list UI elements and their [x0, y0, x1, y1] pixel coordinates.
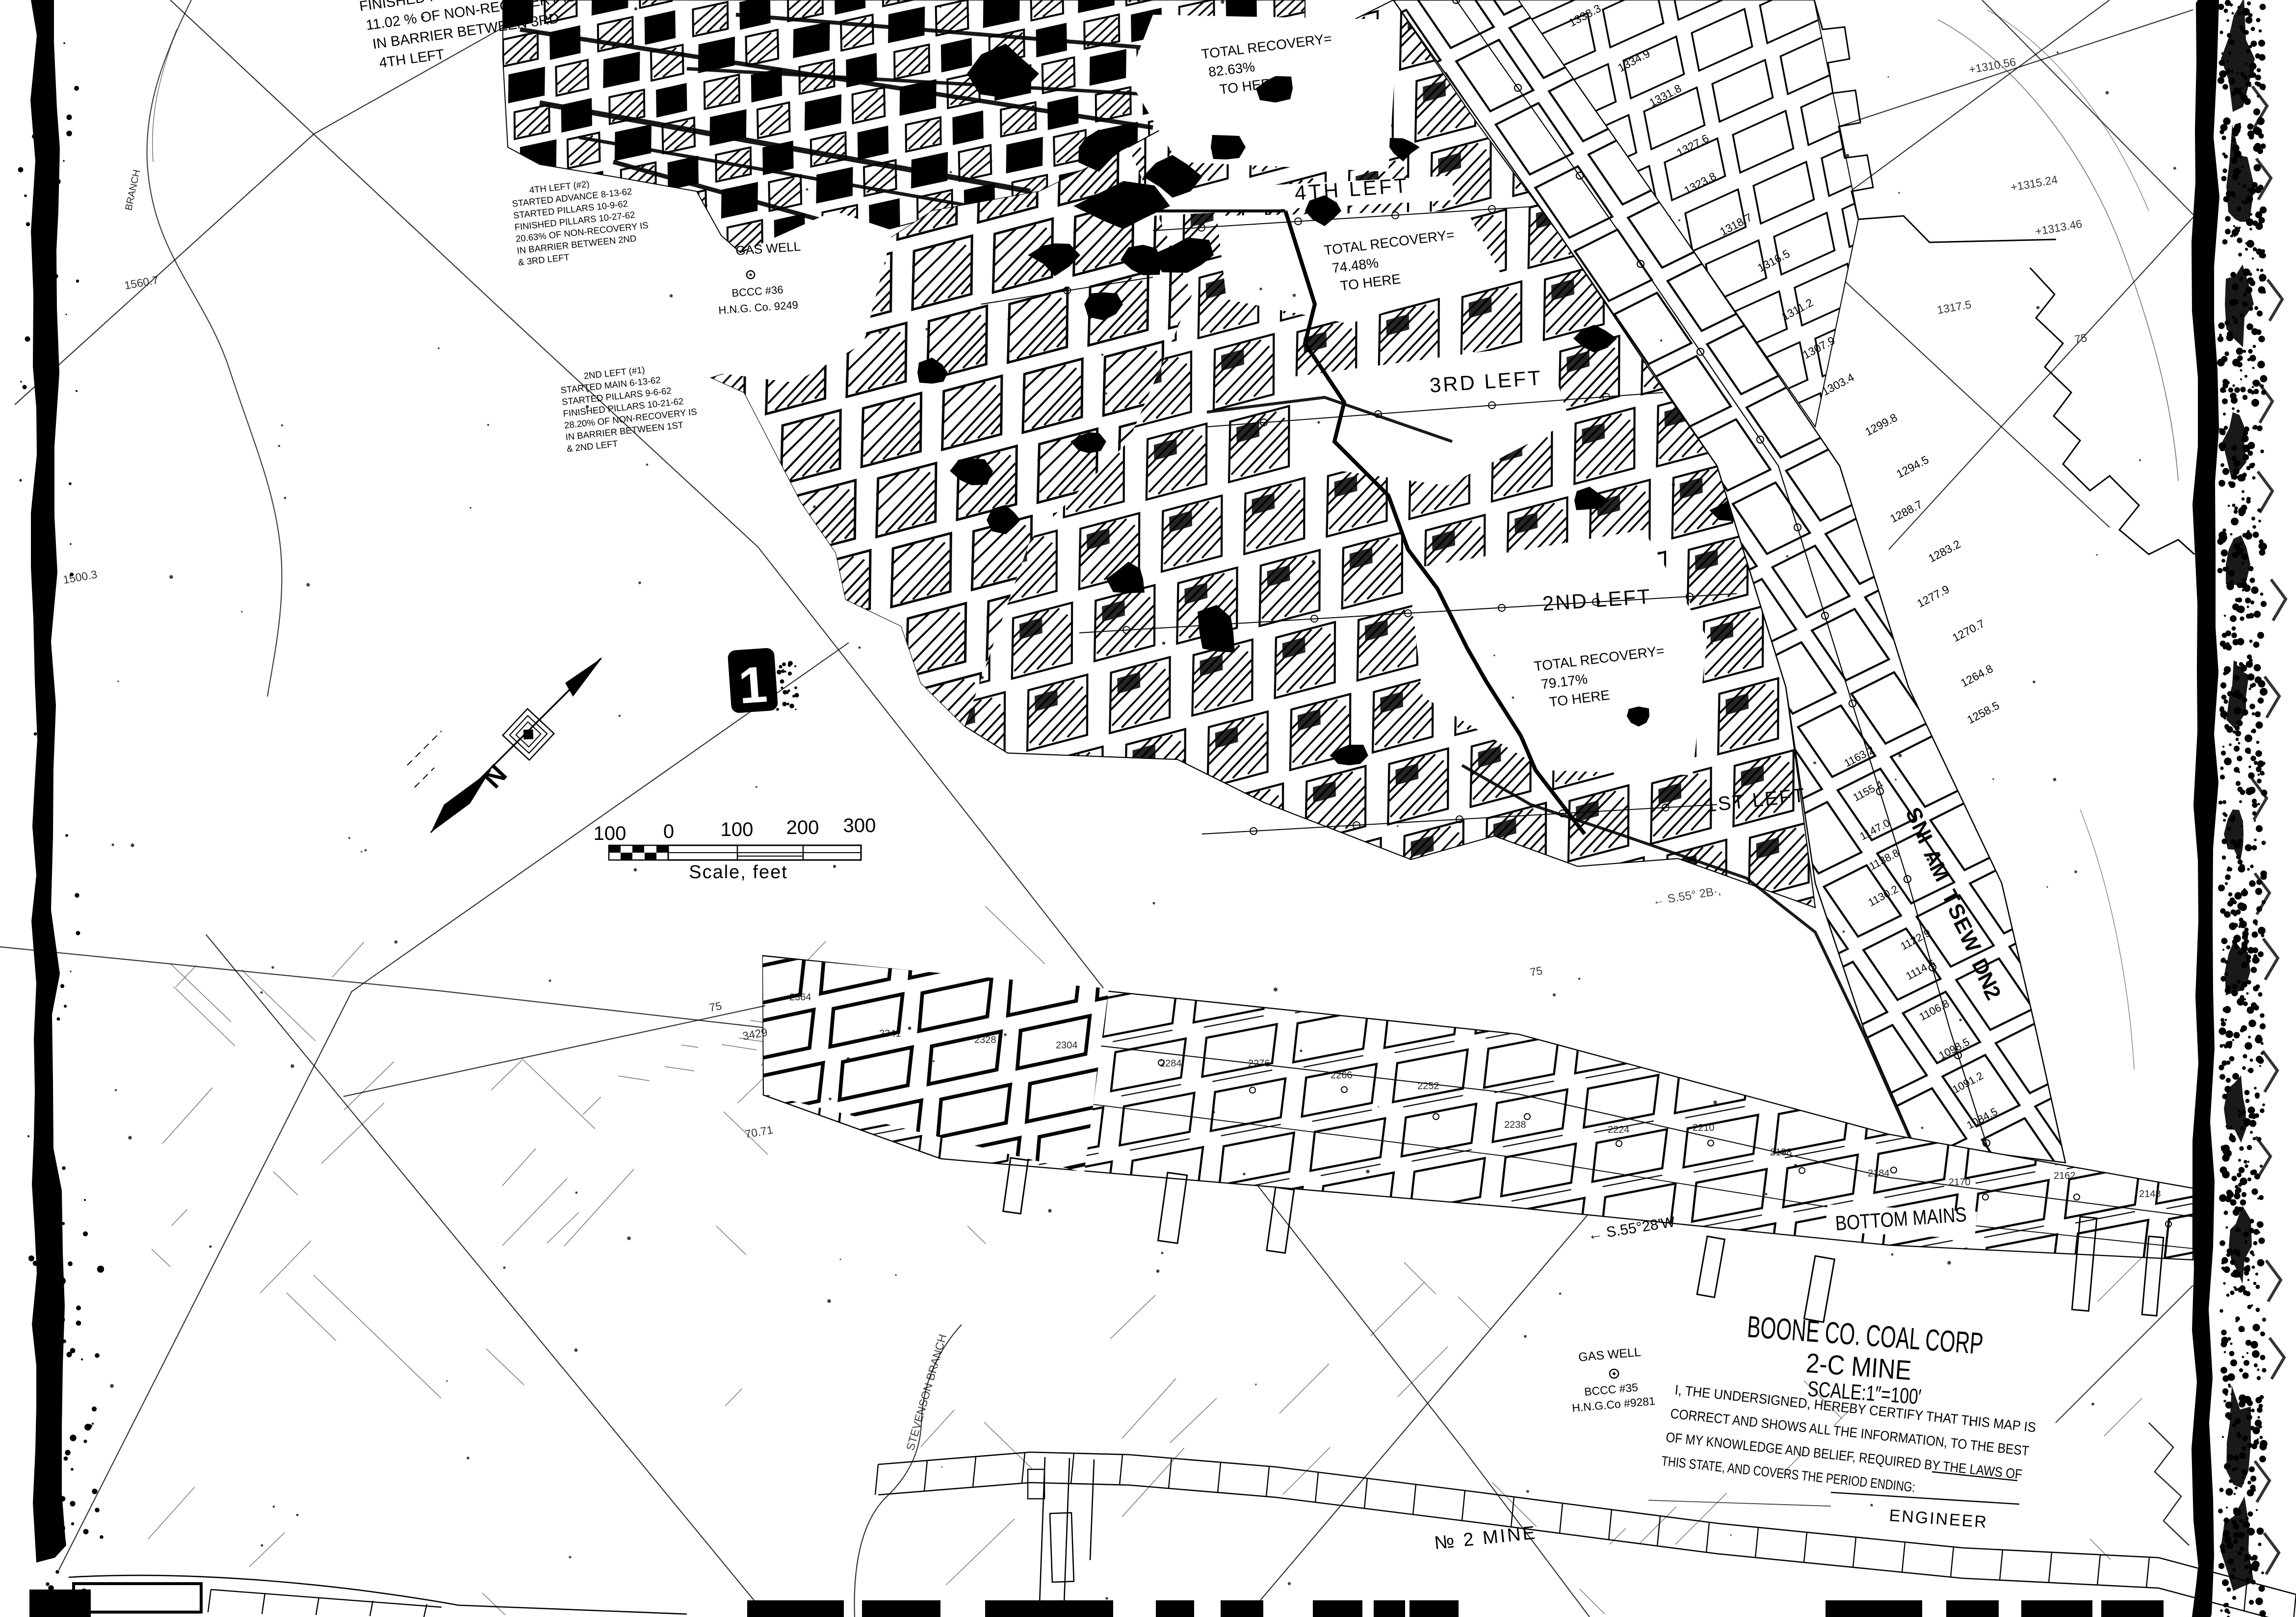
svg-text:2328: 2328 [974, 1035, 996, 1045]
svg-text:2170: 2170 [1949, 1177, 1971, 1188]
svg-text:1: 1 [737, 656, 769, 715]
svg-text:75: 75 [2073, 331, 2088, 346]
svg-text:100: 100 [594, 823, 626, 844]
svg-text:2198: 2198 [1770, 1147, 1792, 1158]
svg-text:200: 200 [786, 817, 819, 838]
svg-text:75: 75 [1529, 964, 1543, 979]
svg-text:2304: 2304 [1056, 1040, 1078, 1051]
svg-text:Scale, feet: Scale, feet [689, 862, 788, 883]
svg-text:2276: 2276 [1248, 1058, 1270, 1069]
svg-text:2162: 2162 [2054, 1171, 2076, 1181]
svg-text:2364: 2364 [789, 992, 811, 1003]
svg-text:75: 75 [708, 999, 723, 1014]
svg-text:2341: 2341 [879, 1028, 901, 1039]
svg-text:2266: 2266 [1331, 1070, 1353, 1081]
svg-text:2238: 2238 [1504, 1120, 1526, 1130]
svg-text:300: 300 [843, 815, 876, 836]
svg-text:2184: 2184 [1868, 1168, 1890, 1179]
svg-text:2252: 2252 [1417, 1081, 1439, 1092]
svg-text:2284: 2284 [1160, 1058, 1182, 1069]
svg-text:2224: 2224 [1608, 1124, 1630, 1135]
svg-text:0: 0 [663, 821, 674, 842]
svg-text:2148: 2148 [2139, 1189, 2161, 1200]
svg-text:2210: 2210 [1693, 1122, 1715, 1133]
svg-text:100: 100 [721, 819, 754, 840]
